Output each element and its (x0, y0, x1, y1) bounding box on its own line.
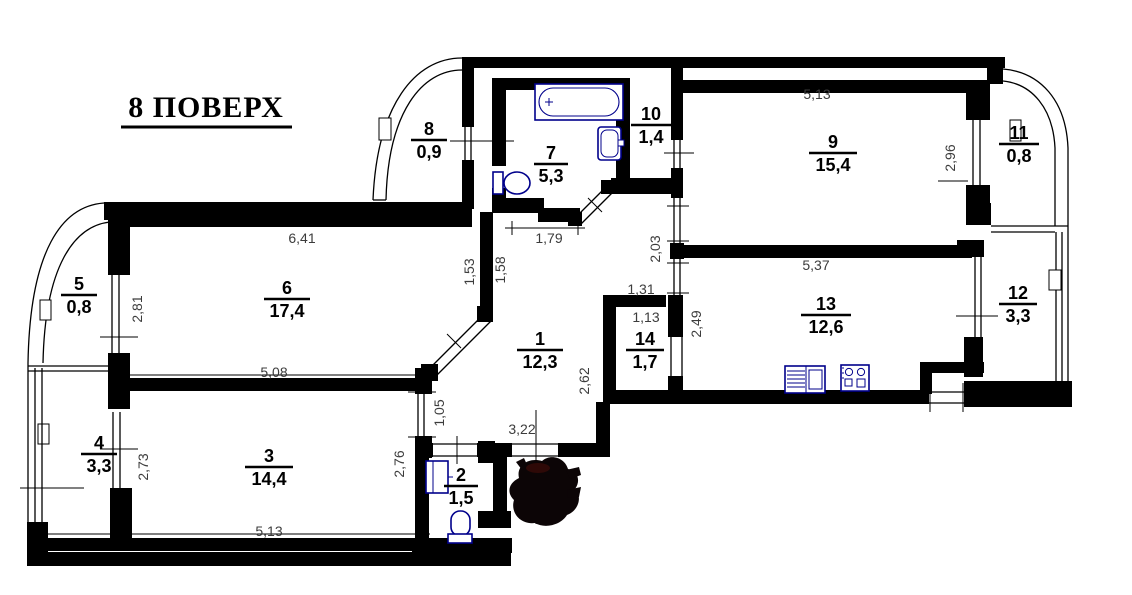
room-label-9: 9 15,4 (809, 132, 857, 175)
bathtub-icon (535, 84, 623, 120)
dim-5-13-bottom: 5,13 (255, 523, 282, 539)
room-number: 11 (1009, 123, 1028, 143)
room-number: 3 (264, 446, 274, 466)
kitchen-sink-counter-icon (785, 366, 825, 393)
room-area: 1,7 (632, 352, 657, 372)
room-number: 12 (1008, 283, 1028, 303)
floor-plan-page: 1 12,3 2 1,5 3 14,4 4 3,3 5 0,8 6 17,4 (0, 0, 1132, 595)
room-label-13: 13 12,6 (801, 294, 851, 337)
dim-1-31: 1,31 (627, 281, 654, 297)
dim-2-49: 2,49 (688, 310, 704, 337)
room-label-8: 8 0,9 (411, 119, 447, 162)
dim-3-22: 3,22 (508, 421, 535, 437)
room-label-4: 4 3,3 (81, 433, 117, 476)
room-label-14: 14 1,7 (626, 329, 664, 372)
dim-1-79: 1,79 (535, 230, 562, 246)
room-number: 9 (828, 132, 838, 152)
room-number: 2 (456, 465, 466, 485)
room-label-6: 6 17,4 (264, 278, 310, 321)
bath-toilet-icon (493, 172, 530, 194)
room-area: 14,4 (251, 469, 286, 489)
room-number: 4 (94, 433, 104, 453)
room-area: 1,5 (448, 488, 473, 508)
ink-stamp (509, 457, 581, 526)
dim-6-41: 6,41 (288, 230, 315, 246)
room-label-2: 2 1,5 (444, 465, 478, 508)
room-area: 5,3 (538, 166, 563, 186)
kitchen-stove-icon (841, 365, 869, 391)
room-number: 6 (282, 278, 292, 298)
room-label-5: 5 0,8 (61, 274, 97, 317)
dim-2-81: 2,81 (129, 295, 145, 322)
plan-title: 8 ПОВЕРХ (121, 91, 292, 127)
room-label-12: 12 3,3 (999, 283, 1037, 326)
room-labels: 1 12,3 2 1,5 3 14,4 4 3,3 5 0,8 6 17,4 (61, 104, 1039, 508)
dim-1-58: 1,58 (492, 256, 508, 283)
room-area: 0,8 (1006, 146, 1031, 166)
room-number: 10 (641, 104, 661, 124)
page-title: 8 ПОВЕРХ (128, 91, 284, 124)
room-area: 12,6 (808, 317, 843, 337)
room-area: 17,4 (269, 301, 304, 321)
dim-1-05: 1,05 (431, 399, 447, 426)
wc-toilet-icon (448, 511, 472, 543)
dim-5-13-top: 5,13 (803, 86, 830, 102)
dim-2-62: 2,62 (576, 367, 592, 394)
floor-plan-canvas: 1 12,3 2 1,5 3 14,4 4 3,3 5 0,8 6 17,4 (0, 0, 1132, 595)
room-label-7: 7 5,3 (534, 143, 568, 186)
room-area: 1,4 (638, 127, 663, 147)
dim-2-73: 2,73 (135, 453, 151, 480)
room-number: 5 (74, 274, 84, 294)
room-number: 14 (635, 329, 655, 349)
room-label-11: 11 0,8 (999, 123, 1039, 166)
room-label-1: 1 12,3 (517, 329, 563, 372)
dim-5-08: 5,08 (260, 364, 287, 380)
dim-2-03: 2,03 (647, 235, 663, 262)
room-area: 0,9 (416, 142, 441, 162)
dim-2-96: 2,96 (942, 144, 958, 171)
room-number: 8 (424, 119, 434, 139)
room-number: 1 (535, 329, 545, 349)
room-label-10: 10 1,4 (631, 104, 671, 147)
dim-5-37: 5,37 (802, 257, 829, 273)
dim-1-53: 1,53 (461, 258, 477, 285)
dim-2-76: 2,76 (391, 450, 407, 477)
room-area: 15,4 (815, 155, 850, 175)
room-number: 13 (816, 294, 836, 314)
room-label-3: 3 14,4 (245, 446, 293, 489)
room-area: 3,3 (86, 456, 111, 476)
bath-sink-icon (598, 127, 624, 160)
room-number: 7 (546, 143, 556, 163)
room-area: 12,3 (522, 352, 557, 372)
dim-1-13: 1,13 (632, 309, 659, 325)
room-area: 3,3 (1005, 306, 1030, 326)
room-area: 0,8 (66, 297, 91, 317)
